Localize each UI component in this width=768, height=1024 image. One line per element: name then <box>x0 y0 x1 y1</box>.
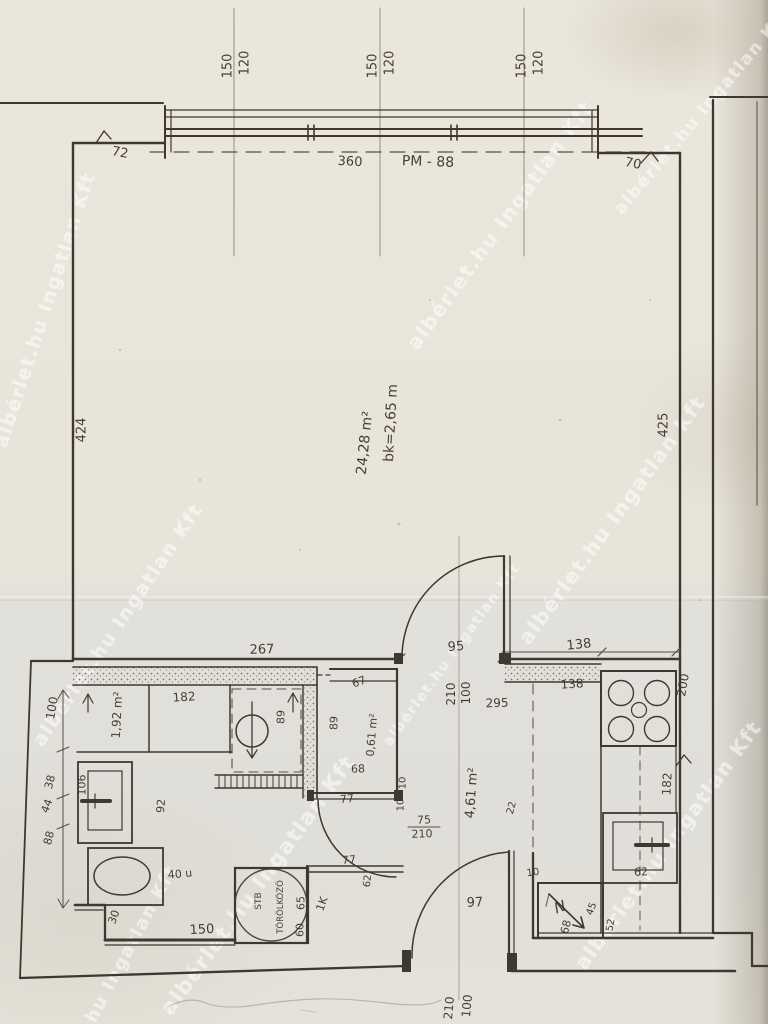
dim-label-win3-w: 150 <box>515 54 530 79</box>
dim-label-win1-w: 150 <box>221 54 236 79</box>
dim-label-wall-138-top: 138 <box>566 636 592 654</box>
dim-label-door-77-a: 77 <box>340 792 355 806</box>
dim-label-wall-72: 72 <box>111 144 130 162</box>
floor-plan-scan: albérlet.hu Ingatlan Kftalbérlet.hu Inga… <box>0 0 768 1024</box>
dim-label-closet-89: 89 <box>328 716 341 730</box>
dim-label-jamb-10-b: 10 <box>396 799 407 812</box>
stove-icon <box>601 671 676 746</box>
stove-burner-icon <box>609 681 634 706</box>
window-type-label: PM - 88 <box>402 153 455 171</box>
stove-burner-icon <box>645 717 670 742</box>
dim-label-storage-60: 60 <box>294 923 307 937</box>
stove-burner-icon <box>609 717 634 742</box>
dim-label-kitchen-182: 182 <box>659 772 674 796</box>
window-width-label: 360 <box>337 154 363 170</box>
dim-label-right-425: 425 <box>657 413 672 438</box>
dim-label-entry-100: 100 <box>459 994 475 1018</box>
dim-label-win1-h: 120 <box>238 51 253 76</box>
kitchen <box>505 664 713 938</box>
dim-label-bath-182: 182 <box>172 689 196 705</box>
dim-label-vestibule-62: 62 <box>362 874 374 888</box>
pencil-scribble <box>170 999 441 1012</box>
dim-label-win2-h: 120 <box>383 51 398 76</box>
storage-label-line2: TÖRÖLKÖZŐ <box>276 880 286 934</box>
dimension-lines <box>57 536 680 1000</box>
dim-label-entry-97: 97 <box>466 895 483 911</box>
dim-label-wc-40: 40 u <box>167 866 193 881</box>
dim-label-win3-h: 120 <box>532 51 547 76</box>
dim-label-bath-150: 150 <box>189 922 215 938</box>
dim-label-kitchen-138: 138 <box>560 676 584 692</box>
stove-burner-icon <box>645 681 670 706</box>
dim-label-kitchen-52: 52 <box>604 918 617 932</box>
dim-label-door-75-210: 210 <box>411 827 432 841</box>
shower-enclosure <box>232 689 301 772</box>
dim-label-wall-70: 70 <box>623 155 642 173</box>
dim-label-closet-68: 68 <box>351 762 365 775</box>
dim-label-win2-w: 150 <box>366 54 381 79</box>
dim-label-kitchen-10: 10 <box>526 867 540 880</box>
window-dim-guides <box>234 8 524 256</box>
dim-label-door-100: 100 <box>459 682 473 705</box>
dim-label-sink-62: 62 <box>634 865 649 879</box>
shower-step-hatch <box>215 775 303 788</box>
dim-label-basin-106: 106 <box>76 775 89 796</box>
dim-label-jamb-10-a: 10 <box>398 777 409 790</box>
dim-label-bath-92: 92 <box>154 798 168 813</box>
window <box>150 8 648 256</box>
dim-label-storage-65: 65 <box>295 896 308 910</box>
dim-label-shower-89: 89 <box>275 710 288 724</box>
dim-label-door-210: 210 <box>444 683 458 706</box>
entrance-door <box>402 851 517 972</box>
dim-label-door-95: 95 <box>447 639 465 655</box>
paper-specks <box>119 299 701 601</box>
dim-label-left-424: 424 <box>75 418 90 443</box>
main-room-walls <box>73 143 680 933</box>
bathroom-area-label: 1,92 m² <box>109 691 125 739</box>
dim-label-hall-295: 295 <box>485 696 508 711</box>
dim-label-door-77-b: 77 <box>342 853 357 867</box>
storage-label-line1: STB <box>254 892 264 909</box>
dim-label-door-75: 75 <box>417 813 431 826</box>
door-swing-arc <box>412 852 509 958</box>
dim-label-wall-267: 267 <box>249 642 274 658</box>
dim-label-entry-210: 210 <box>441 996 457 1020</box>
